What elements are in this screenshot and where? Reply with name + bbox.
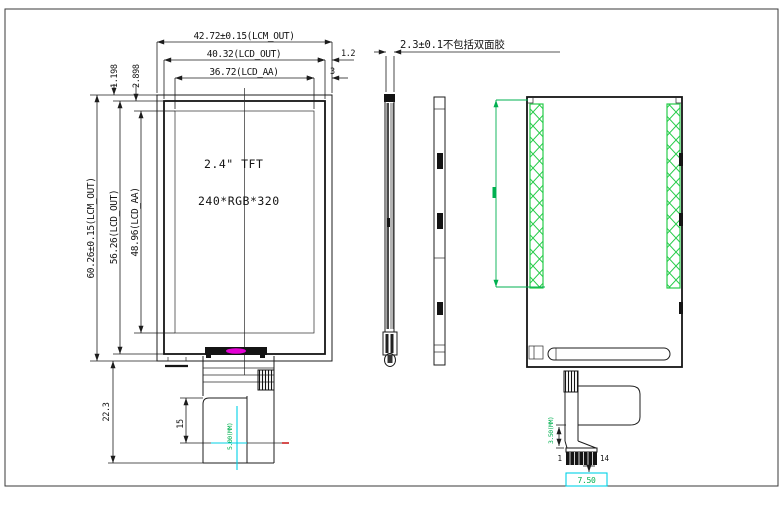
engineering-drawing-sheet: 2.4" TFT 240*RGB*320 5.0 <box>0 0 784 519</box>
front-bottom-step <box>168 357 186 361</box>
side-profile-frame <box>434 97 445 365</box>
dim-height-aa: 48.96(LCD_AA) <box>130 187 141 256</box>
thickness-note: 2.3±0.1不包括双面胶 <box>400 38 505 51</box>
tape-length-label <box>493 187 497 198</box>
side-profile-glass <box>383 94 397 367</box>
front-view: 2.4" TFT 240*RGB*320 5.0 <box>157 88 332 470</box>
fpc-fold-foot <box>383 332 397 355</box>
drawing-frame-border <box>5 9 778 486</box>
lcd-module-drawing: 2.4" TFT 240*RGB*320 5.0 <box>0 0 784 519</box>
top-bezel-cap <box>384 94 395 102</box>
ic-corner-pad-right <box>260 353 265 358</box>
frame-hook-2 <box>437 213 443 229</box>
fpc-stiffener <box>564 371 578 392</box>
front-fpc-lower <box>203 396 289 463</box>
dim-width-lcd: 40.32(LCD_OUT) <box>207 49 281 60</box>
dim-width-aa: 36.72(LCD_AA) <box>209 67 278 78</box>
ic-corner-pad-left <box>206 353 211 358</box>
dim-width-lcm: 42.72±0.15(LCM_OUT) <box>193 31 294 42</box>
fpc-fold-note: 3.50(MM) <box>547 417 555 444</box>
fpc-width-note: 5.00(MM) <box>226 423 234 450</box>
dim-edge-lcd: 1.2 <box>341 49 355 59</box>
pin-14-label: 14 <box>600 454 610 463</box>
dim-fpc-drop: 22.3 <box>102 402 112 421</box>
panel-size-label: 2.4" TFT <box>204 157 263 171</box>
panel-resolution-label: 240*RGB*320 <box>198 194 280 208</box>
fpc-flap <box>578 386 640 425</box>
dim-edge-aa: 3 <box>330 67 335 77</box>
fpc-connector-front <box>258 370 274 390</box>
dim-connector-width: 7.50 <box>577 476 596 485</box>
frame-hook-1 <box>437 153 443 169</box>
back-view: 1 14 3.50(MM) 7.50 <box>493 97 684 486</box>
dim-height-lcd: 56.26(LCD_OUT) <box>109 190 120 264</box>
dim-top-offset1: 1.198 <box>110 64 120 88</box>
connector-top-band <box>566 448 597 452</box>
back-outline <box>527 97 682 367</box>
frame-hook-3 <box>437 302 443 315</box>
pin-1-label: 1 <box>557 454 562 463</box>
tape-strip-right <box>667 104 680 288</box>
dim-top-offset2: 2.898 <box>132 64 142 88</box>
back-corner-block <box>529 346 543 359</box>
dim-height-lcm: 60.26±0.15(LCM_OUT) <box>86 177 97 278</box>
tape-strip-left <box>530 104 543 288</box>
dim-fpc-height: 15 <box>176 419 186 429</box>
magenta-marking <box>226 348 246 354</box>
back-fpc-tail: 1 14 <box>557 371 640 465</box>
back-label-slot <box>548 348 670 360</box>
front-fpc-upper <box>203 356 274 396</box>
